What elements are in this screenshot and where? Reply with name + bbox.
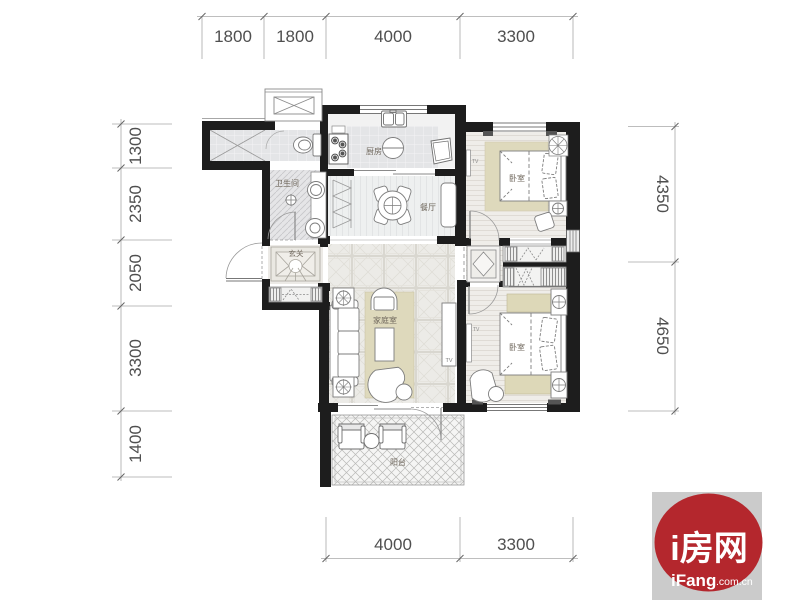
svg-text:4350: 4350 [653, 175, 672, 213]
svg-text:TV: TV [473, 327, 480, 333]
svg-text:4000: 4000 [374, 535, 412, 554]
svg-text:2350: 2350 [126, 185, 145, 223]
svg-text:1800: 1800 [214, 27, 252, 46]
svg-text:3300: 3300 [497, 27, 535, 46]
svg-text:阳台: 阳台 [390, 457, 406, 467]
svg-text:TV: TV [472, 159, 479, 165]
svg-text:3300: 3300 [497, 535, 535, 554]
svg-text:1800: 1800 [276, 27, 314, 46]
svg-text:4000: 4000 [374, 27, 412, 46]
svg-text:家庭室: 家庭室 [373, 315, 397, 325]
svg-text:3300: 3300 [126, 339, 145, 377]
svg-text:1300: 1300 [126, 127, 145, 165]
svg-text:卧室: 卧室 [509, 342, 525, 352]
svg-text:i房网: i房网 [670, 530, 747, 568]
svg-text:玄关: 玄关 [289, 248, 304, 258]
svg-text:iFang: iFang [671, 571, 716, 590]
svg-text:TV: TV [445, 358, 452, 364]
svg-text:4650: 4650 [653, 317, 672, 355]
svg-text:卫生间: 卫生间 [275, 178, 299, 188]
svg-text:1400: 1400 [126, 425, 145, 463]
svg-text:厨房: 厨房 [366, 146, 382, 156]
svg-text:餐厅: 餐厅 [420, 203, 436, 212]
svg-text:卧室: 卧室 [509, 173, 525, 183]
svg-text:2050: 2050 [126, 254, 145, 292]
svg-text:.com.cn: .com.cn [716, 576, 753, 588]
